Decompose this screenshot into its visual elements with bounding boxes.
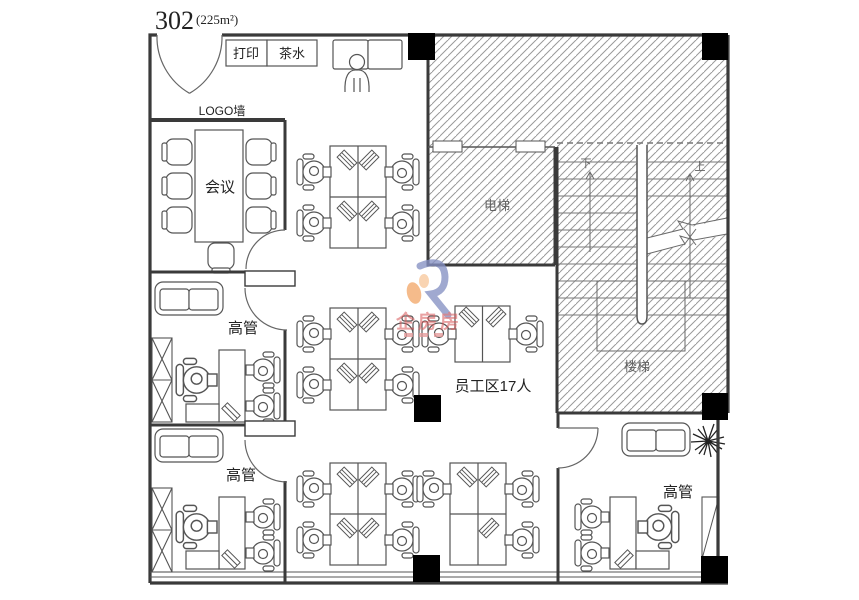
column — [414, 395, 441, 422]
sofa — [155, 429, 223, 462]
sofa — [622, 423, 690, 456]
staircase-label: 楼梯 — [624, 359, 650, 374]
floor-plan: 302 (225m²) 打印 茶水 LOGO墙 会议 高管 高管 高管 电梯 楼… — [0, 0, 859, 600]
sofa — [155, 282, 223, 315]
stair-down-label: 下 — [581, 158, 592, 170]
meeting-room-door — [246, 230, 285, 269]
watermark-logo-icon — [420, 263, 448, 315]
meeting-chair — [162, 173, 192, 199]
wall-stub-1 — [245, 271, 295, 286]
stair-divider-wall — [637, 145, 647, 324]
reception-desk-right — [368, 40, 402, 69]
logo-wall-label: LOGO墙 — [199, 104, 246, 118]
meeting-chair — [246, 173, 276, 199]
meeting-chair — [162, 207, 192, 233]
entrance-double-door — [157, 35, 222, 93]
unit-number: 302 — [155, 6, 194, 35]
workstation-cluster-4 — [297, 463, 419, 565]
column — [413, 555, 440, 582]
workstation-cluster-4 — [297, 146, 419, 248]
unit-area: (225m²) — [196, 12, 238, 27]
exec1-label: 高管 — [228, 320, 258, 337]
meeting-chair — [246, 207, 276, 233]
bookshelf — [152, 338, 172, 422]
meeting-chair — [246, 139, 276, 165]
exec-desk-suite — [176, 350, 280, 424]
meeting-chair — [208, 243, 234, 273]
exec2-label: 高管 — [226, 467, 256, 484]
column — [702, 33, 728, 60]
elevator-door — [516, 141, 545, 152]
exec-desk-suite — [176, 497, 280, 571]
meeting-chair — [162, 139, 192, 165]
watermark-subtext-marks — [404, 333, 443, 337]
column — [701, 556, 728, 583]
elevator-door — [433, 141, 462, 152]
bookshelf — [152, 488, 172, 572]
workstation-cluster-3 — [417, 463, 539, 565]
elevator-label: 电梯 — [484, 198, 510, 213]
plant-icon — [691, 424, 725, 457]
stair-up-label: 上 — [695, 160, 706, 173]
lobby-hatch — [428, 35, 728, 145]
column — [408, 33, 435, 60]
exec-office-3 — [575, 423, 725, 571]
column — [702, 393, 728, 420]
exec-office-2 — [152, 429, 280, 572]
watermark-logo-leaf — [419, 274, 429, 288]
exec-desk-suite — [575, 497, 679, 571]
wall-stub-2 — [245, 421, 295, 436]
floor-plan-canvas: 302 (225m²) 打印 茶水 LOGO墙 会议 高管 高管 高管 电梯 楼… — [0, 0, 859, 600]
print-label: 打印 — [233, 46, 259, 61]
staff-area-label: 员工区17人 — [455, 378, 532, 395]
exec3-label: 高管 — [663, 484, 693, 501]
watermark: 企房房 — [395, 263, 462, 337]
watermark-brand: 企房房 — [395, 310, 462, 333]
meeting-room — [162, 130, 276, 273]
exec3-door — [558, 428, 598, 468]
meeting-label: 会议 — [205, 179, 235, 196]
exec-office-1 — [152, 282, 280, 424]
tea-label: 茶水 — [279, 46, 305, 61]
